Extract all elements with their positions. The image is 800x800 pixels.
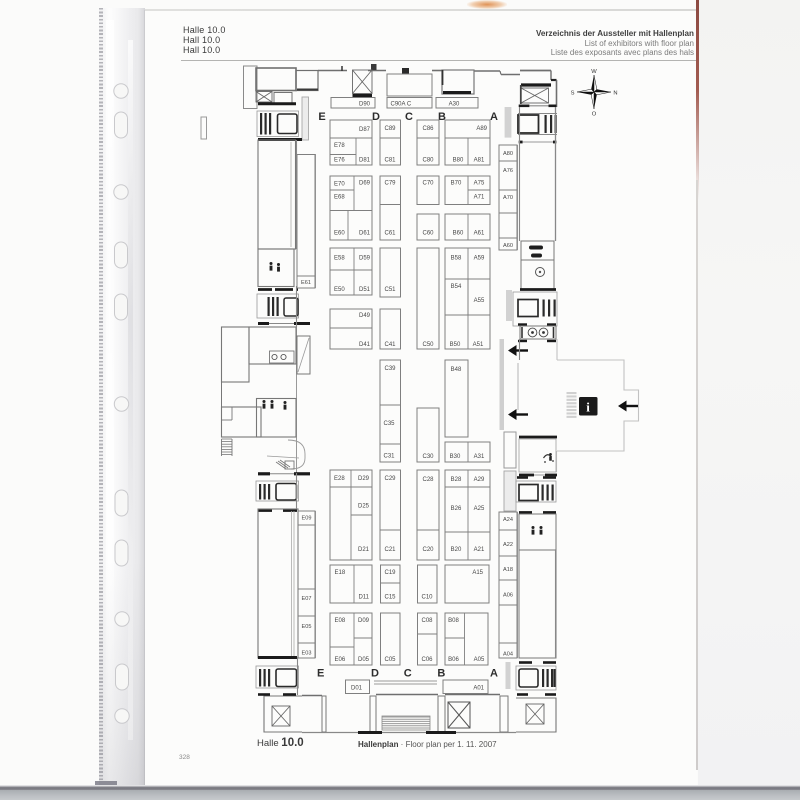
svg-text:D25: D25 <box>358 504 370 510</box>
svg-text:A89: A89 <box>476 126 487 132</box>
svg-text:C20: C20 <box>422 547 434 553</box>
svg-text:A75: A75 <box>474 181 485 187</box>
svg-text:A51: A51 <box>473 342 484 348</box>
svg-text:C: C <box>405 111 413 123</box>
svg-text:N: N <box>613 91 617 97</box>
svg-text:A55: A55 <box>474 298 485 304</box>
svg-text:C50: C50 <box>422 342 434 348</box>
svg-text:E: E <box>318 111 325 123</box>
svg-text:D90: D90 <box>359 102 371 108</box>
svg-text:C08: C08 <box>421 618 433 624</box>
svg-text:D51: D51 <box>359 287 371 293</box>
svg-text:C: C <box>404 668 412 680</box>
svg-text:D69: D69 <box>359 181 371 187</box>
svg-text:D61: D61 <box>359 231 371 237</box>
svg-text:C80: C80 <box>422 158 434 164</box>
svg-text:C90A C: C90A C <box>391 102 412 108</box>
svg-text:A31: A31 <box>474 454 485 460</box>
svg-text:E70: E70 <box>334 182 345 188</box>
svg-text:A24: A24 <box>503 517 513 523</box>
svg-text:A18: A18 <box>503 567 513 573</box>
svg-text:B60: B60 <box>453 231 464 237</box>
svg-text:E60: E60 <box>334 231 345 237</box>
svg-text:D41: D41 <box>359 342 371 348</box>
svg-text:A22: A22 <box>503 542 513 548</box>
svg-text:E07: E07 <box>302 596 312 602</box>
svg-text:A15: A15 <box>472 570 483 576</box>
svg-text:D11: D11 <box>358 595 369 601</box>
svg-text:C41: C41 <box>384 342 396 348</box>
svg-text:D87: D87 <box>359 127 371 133</box>
svg-text:B80: B80 <box>453 158 464 164</box>
svg-text:B28: B28 <box>451 477 462 483</box>
svg-text:B58: B58 <box>451 256 462 262</box>
svg-text:A81: A81 <box>474 158 485 164</box>
svg-text:E06: E06 <box>335 657 346 663</box>
svg-text:B54: B54 <box>451 284 462 290</box>
svg-text:C70: C70 <box>422 181 434 187</box>
svg-text:C05: C05 <box>384 657 396 663</box>
svg-text:C21: C21 <box>384 547 396 553</box>
svg-text:A70: A70 <box>503 195 513 201</box>
svg-text:E18: E18 <box>335 570 346 576</box>
svg-text:C06: C06 <box>421 657 433 663</box>
svg-text:E09: E09 <box>302 516 312 522</box>
svg-text:A76: A76 <box>503 168 513 174</box>
svg-text:i: i <box>586 400 590 415</box>
svg-text:C61: C61 <box>384 231 396 237</box>
svg-text:C39: C39 <box>384 366 396 372</box>
svg-text:C29: C29 <box>384 476 396 482</box>
svg-text:E76: E76 <box>334 158 345 164</box>
svg-text:C15: C15 <box>384 595 396 601</box>
svg-text:B30: B30 <box>450 454 461 460</box>
svg-text:S: S <box>571 91 575 97</box>
svg-text:C31: C31 <box>383 454 395 460</box>
svg-text:E58: E58 <box>334 256 345 262</box>
svg-text:A: A <box>490 111 498 123</box>
svg-text:O: O <box>592 112 597 118</box>
svg-text:A21: A21 <box>474 547 485 553</box>
svg-text:A06: A06 <box>503 593 513 599</box>
svg-text:E68: E68 <box>334 195 345 201</box>
svg-text:B26: B26 <box>451 506 462 512</box>
svg-text:D01: D01 <box>351 686 363 692</box>
svg-text:A05: A05 <box>474 657 485 663</box>
svg-text:E08: E08 <box>335 618 346 624</box>
svg-text:D: D <box>371 668 379 680</box>
svg-text:B08: B08 <box>448 618 459 624</box>
svg-text:E: E <box>317 668 324 680</box>
svg-text:B20: B20 <box>451 547 462 553</box>
svg-text:C30: C30 <box>422 454 434 460</box>
svg-text:D05: D05 <box>358 657 370 663</box>
svg-text:A59: A59 <box>474 256 485 262</box>
svg-text:D49: D49 <box>359 313 371 319</box>
svg-text:B48: B48 <box>451 367 462 373</box>
svg-text:B06: B06 <box>448 657 459 663</box>
svg-text:A61: A61 <box>474 231 485 237</box>
svg-text:B: B <box>437 668 445 680</box>
svg-text:C19: C19 <box>384 570 396 576</box>
svg-text:E03: E03 <box>302 651 312 657</box>
svg-text:W: W <box>591 69 597 75</box>
svg-text:E78: E78 <box>334 143 345 149</box>
svg-text:E28: E28 <box>334 476 345 482</box>
svg-text:D29: D29 <box>358 476 370 482</box>
svg-text:A29: A29 <box>474 477 485 483</box>
svg-text:C81: C81 <box>384 158 396 164</box>
svg-text:C86: C86 <box>422 126 434 132</box>
svg-text:B70: B70 <box>451 181 462 187</box>
svg-text:D59: D59 <box>359 256 371 262</box>
svg-text:D: D <box>372 111 380 123</box>
svg-text:A25: A25 <box>474 506 485 512</box>
svg-text:A01: A01 <box>473 686 484 692</box>
svg-text:D21: D21 <box>358 547 370 553</box>
svg-text:D09: D09 <box>358 618 370 624</box>
svg-text:D81: D81 <box>359 158 371 164</box>
svg-text:A60: A60 <box>503 243 513 249</box>
svg-text:C28: C28 <box>422 477 434 483</box>
svg-text:B50: B50 <box>450 342 461 348</box>
svg-text:C51: C51 <box>384 287 396 293</box>
svg-text:A30: A30 <box>449 102 460 108</box>
svg-text:C10: C10 <box>421 595 433 601</box>
svg-text:A: A <box>490 668 498 680</box>
svg-text:C35: C35 <box>383 421 395 427</box>
svg-text:A04: A04 <box>503 652 513 658</box>
svg-text:C60: C60 <box>422 231 434 237</box>
svg-text:A80: A80 <box>503 151 513 157</box>
svg-text:E05: E05 <box>302 624 312 630</box>
svg-text:A71: A71 <box>474 195 485 201</box>
svg-text:C79: C79 <box>384 181 396 187</box>
svg-text:E61: E61 <box>301 280 311 286</box>
svg-text:E50: E50 <box>334 287 345 293</box>
svg-text:C89: C89 <box>384 126 396 132</box>
